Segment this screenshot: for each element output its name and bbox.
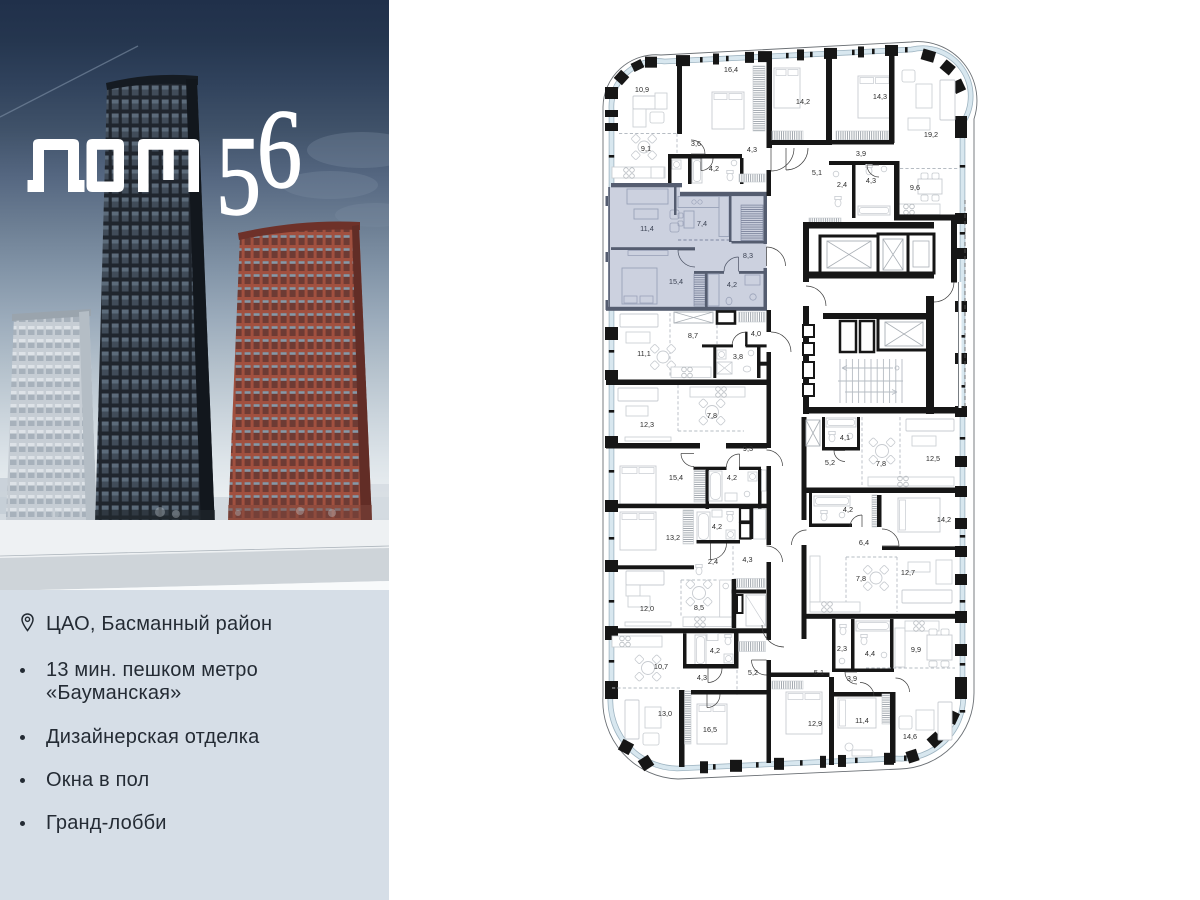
svg-text:9,9: 9,9 (911, 645, 921, 654)
svg-text:2,4: 2,4 (837, 180, 847, 189)
svg-text:5,1: 5,1 (812, 168, 822, 177)
svg-text:4,0: 4,0 (751, 329, 761, 338)
svg-text:7,8: 7,8 (707, 411, 717, 420)
svg-text:16,5: 16,5 (703, 725, 717, 734)
svg-text:4,2: 4,2 (709, 164, 719, 173)
svg-text:11,4: 11,4 (640, 224, 654, 233)
svg-text:4,2: 4,2 (843, 505, 853, 514)
svg-text:4,3: 4,3 (697, 673, 707, 682)
svg-text:5,2: 5,2 (748, 668, 758, 677)
svg-text:4,4: 4,4 (865, 649, 875, 658)
svg-text:5,1: 5,1 (814, 668, 824, 677)
svg-text:4,2: 4,2 (710, 646, 720, 655)
svg-text:10,7: 10,7 (654, 662, 668, 671)
svg-text:7,4: 7,4 (697, 219, 707, 228)
svg-text:12,7: 12,7 (901, 568, 915, 577)
svg-text:15,4: 15,4 (669, 473, 683, 482)
svg-text:8,3: 8,3 (743, 251, 753, 260)
svg-text:15,4: 15,4 (669, 277, 683, 286)
svg-text:9,3: 9,3 (743, 444, 753, 453)
svg-text:14,2: 14,2 (937, 515, 951, 524)
svg-text:7,8: 7,8 (876, 459, 886, 468)
svg-text:9,1: 9,1 (641, 144, 651, 153)
svg-text:3,9: 3,9 (847, 674, 857, 683)
svg-text:4,1: 4,1 (840, 433, 850, 442)
svg-text:14,2: 14,2 (796, 97, 810, 106)
svg-text:5,2: 5,2 (825, 458, 835, 467)
svg-text:8,5: 8,5 (694, 603, 704, 612)
svg-text:14,3: 14,3 (873, 92, 887, 101)
svg-text:2,4: 2,4 (708, 557, 718, 566)
svg-text:11,4: 11,4 (855, 716, 869, 725)
svg-text:10,9: 10,9 (635, 85, 649, 94)
svg-text:4,2: 4,2 (712, 522, 722, 531)
svg-text:7,8: 7,8 (856, 574, 866, 583)
svg-text:8,7: 8,7 (688, 331, 698, 340)
svg-text:12,5: 12,5 (926, 454, 940, 463)
svg-text:3,6: 3,6 (691, 139, 701, 148)
svg-text:4,3: 4,3 (742, 555, 752, 564)
svg-text:4,2: 4,2 (727, 280, 737, 289)
svg-text:19,2: 19,2 (924, 130, 938, 139)
svg-text:12,3: 12,3 (640, 420, 654, 429)
svg-text:4,3: 4,3 (866, 176, 876, 185)
svg-text:6,4: 6,4 (859, 538, 869, 547)
svg-text:13,2: 13,2 (666, 533, 680, 542)
svg-text:16,4: 16,4 (724, 65, 738, 74)
svg-text:2,3: 2,3 (837, 644, 847, 653)
svg-text:3,9: 3,9 (856, 149, 866, 158)
svg-text:4,3: 4,3 (747, 145, 757, 154)
svg-text:14,6: 14,6 (903, 732, 917, 741)
svg-text:12,0: 12,0 (640, 604, 654, 613)
svg-text:11,1: 11,1 (637, 349, 651, 358)
svg-text:3,8: 3,8 (733, 352, 743, 361)
svg-text:13,0: 13,0 (658, 709, 672, 718)
svg-text:4,2: 4,2 (727, 473, 737, 482)
svg-text:12,9: 12,9 (808, 719, 822, 728)
svg-text:9,6: 9,6 (910, 183, 920, 192)
